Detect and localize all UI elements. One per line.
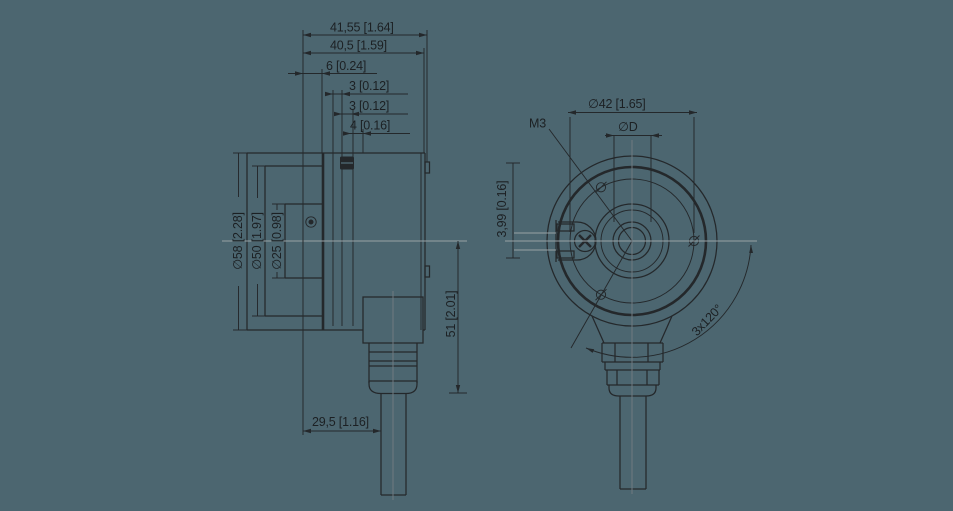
dim-body-depth-label: 40,5 [1.59] [330,39,387,53]
encoder-dimension-drawing: 41,55 [1.64] 40,5 [1.59] 6 [0.24] 3 [0.1… [0,0,953,511]
dim-flange-diameter-label: ∅58 [2.28] [231,212,245,270]
drawing-background [0,0,953,511]
set-screw [340,157,354,170]
dim-pilot-diameter-label: ∅50 [1.97] [250,212,264,270]
dim-gland-length-label: 51 [2.01] [444,291,458,338]
dim-bolt-circle-label: ∅42 [1.65] [588,97,646,111]
dim-step-a-label: 3 [0.12] [349,79,389,93]
dim-boss-diameter-label: ∅25 [0.98] [270,212,284,270]
dim-boss-diameter: ∅25 [0.98] [270,204,285,278]
dim-front-offset-label: 6 [0.24] [326,59,366,73]
dim-total-depth-label: 41,55 [1.64] [330,21,394,35]
dim-tab-thickness-label: 3,99 [0.16] [495,181,509,238]
dim-step-c-label: 4 [0.16] [350,119,390,133]
dim-step-b-label: 3 [0.12] [349,99,389,113]
screw-thread-label: M3 [529,117,546,131]
dim-cable-offset-label: 29,5 [1.16] [312,415,369,429]
dim-shaft-bore-label: ∅D [618,120,638,134]
